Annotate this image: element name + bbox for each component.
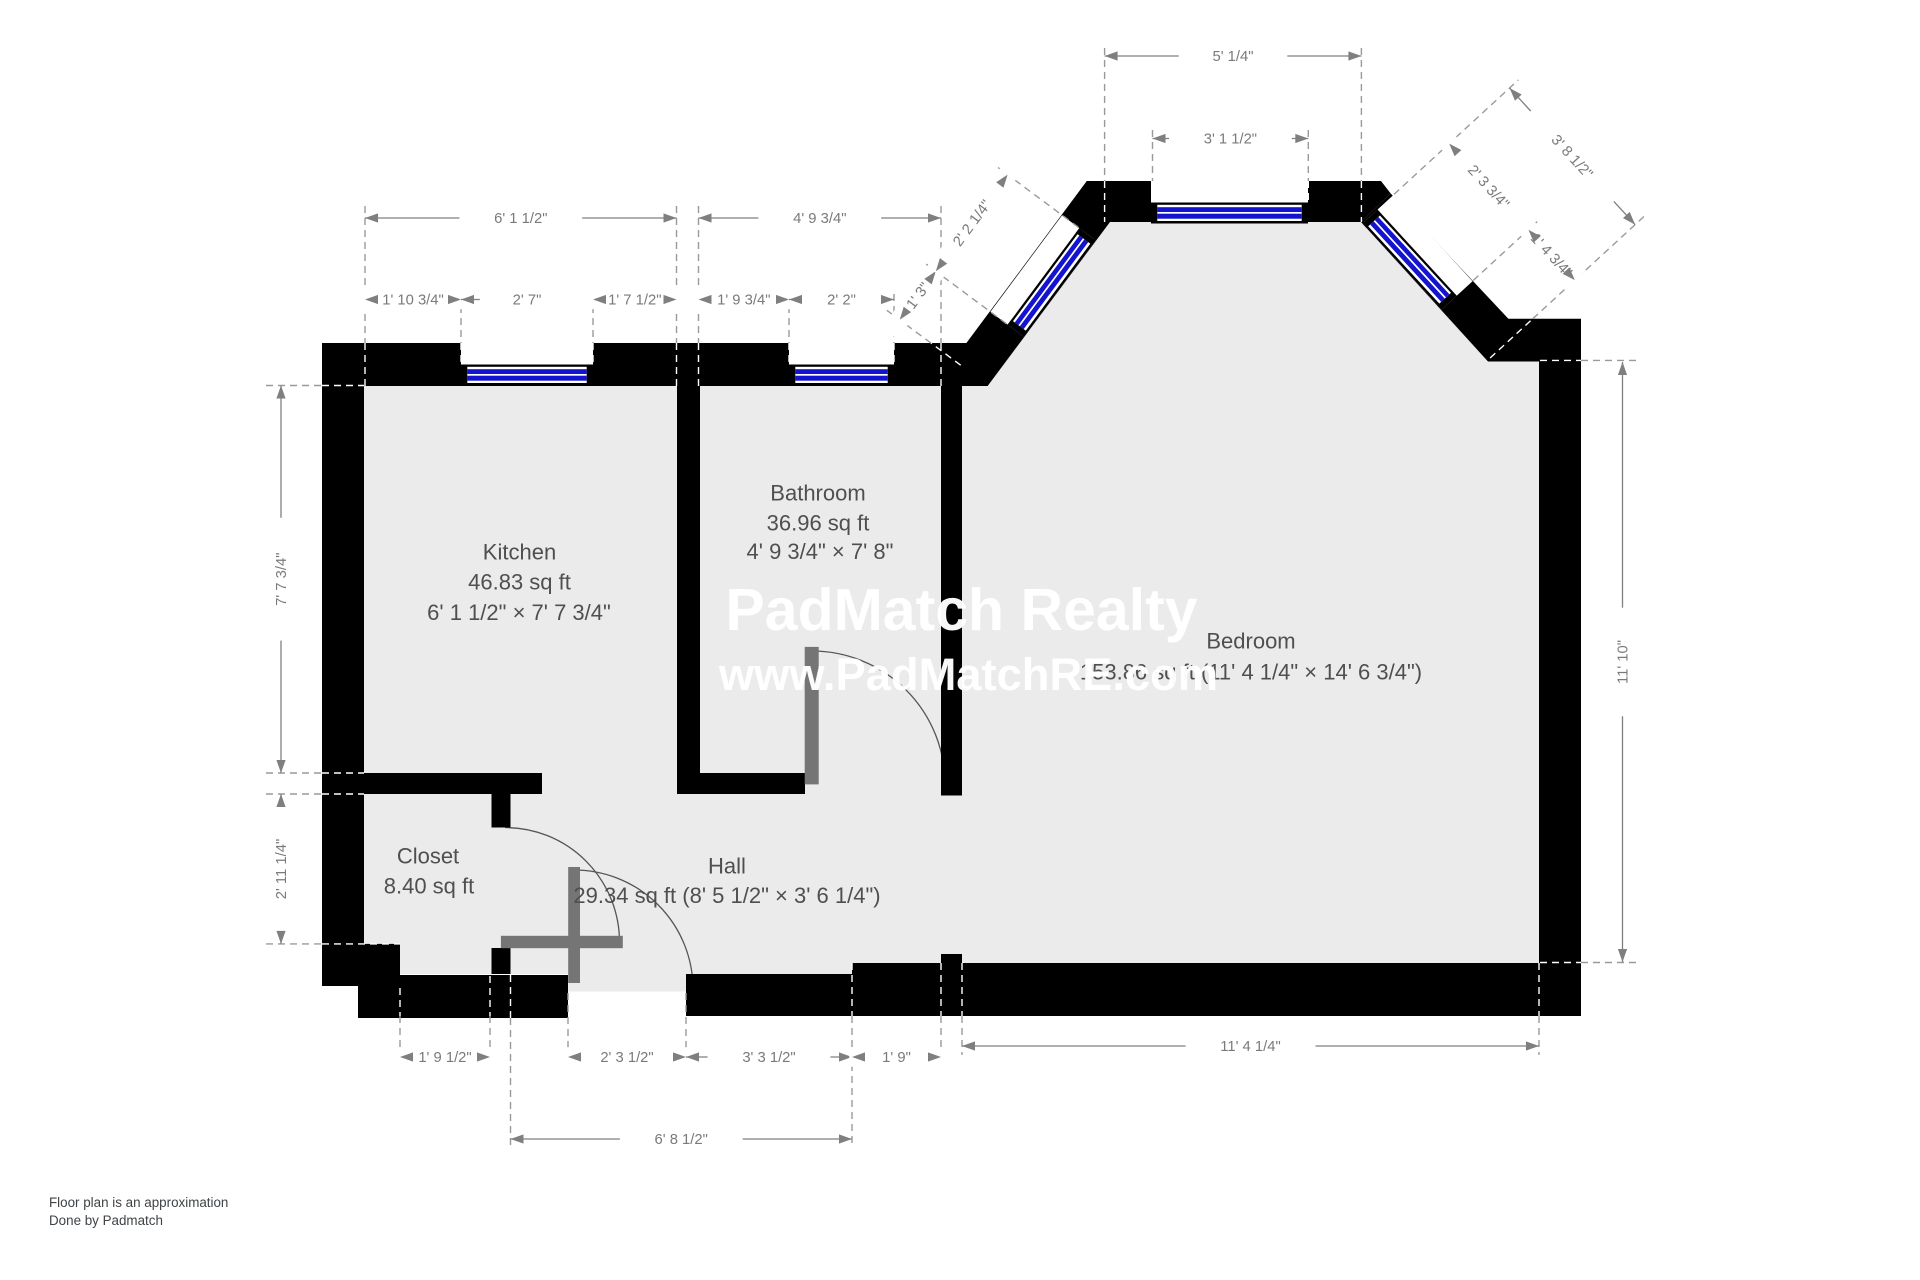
svg-text:Bedroom: Bedroom [1206, 629, 1295, 654]
svg-text:Bathroom: Bathroom [770, 481, 865, 506]
svg-text:2' 3 1/2": 2' 3 1/2" [600, 1050, 653, 1066]
svg-text:29.34 sq ft (8' 5 1/2" × 3' 6: 29.34 sq ft (8' 5 1/2" × 3' 6 1/4") [573, 883, 880, 908]
svg-text:3' 3 1/2": 3' 3 1/2" [742, 1050, 795, 1066]
svg-text:46.83 sq ft: 46.83 sq ft [468, 570, 571, 595]
svg-text:Kitchen: Kitchen [483, 540, 556, 565]
svg-text:4' 9 3/4": 4' 9 3/4" [793, 211, 846, 227]
svg-text:PadMatch Realty: PadMatch Realty [725, 577, 1197, 643]
svg-text:11' 4 1/4": 11' 4 1/4" [1220, 1039, 1280, 1055]
svg-text:1' 9 3/4": 1' 9 3/4" [717, 293, 770, 309]
svg-text:2' 11 1/4": 2' 11 1/4" [274, 839, 290, 899]
svg-text:3' 1 1/2": 3' 1 1/2" [1204, 132, 1257, 148]
svg-text:1' 7 1/2": 1' 7 1/2" [608, 293, 661, 309]
svg-text:7' 7 3/4": 7' 7 3/4" [274, 553, 290, 606]
svg-text:6' 1 1/2" × 7' 7 3/4": 6' 1 1/2" × 7' 7 3/4" [427, 600, 611, 625]
svg-text:6' 8 1/2": 6' 8 1/2" [655, 1132, 708, 1148]
svg-text:1' 10 3/4": 1' 10 3/4" [382, 293, 444, 309]
svg-text:1' 9 1/2": 1' 9 1/2" [418, 1050, 471, 1066]
svg-text:Hall: Hall [708, 854, 746, 879]
svg-text:Floor plan is an approximation: Floor plan is an approximation [49, 1195, 228, 1210]
svg-text:8.40 sq ft: 8.40 sq ft [384, 874, 475, 899]
svg-text:5' 1/4": 5' 1/4" [1213, 49, 1254, 65]
svg-text:2' 2": 2' 2" [827, 293, 856, 309]
svg-text:Closet: Closet [397, 844, 459, 869]
svg-text:www.PadMatchRE.com: www.PadMatchRE.com [718, 649, 1218, 700]
svg-text:6' 1 1/2": 6' 1 1/2" [494, 211, 547, 227]
svg-text:11' 10": 11' 10" [1616, 640, 1632, 684]
svg-text:4' 9 3/4" × 7' 8": 4' 9 3/4" × 7' 8" [747, 539, 894, 564]
svg-text:Done by Padmatch: Done by Padmatch [49, 1213, 163, 1228]
svg-text:1' 9": 1' 9" [882, 1050, 911, 1066]
svg-text:36.96 sq ft: 36.96 sq ft [767, 511, 870, 536]
svg-text:2' 7": 2' 7" [513, 293, 542, 309]
